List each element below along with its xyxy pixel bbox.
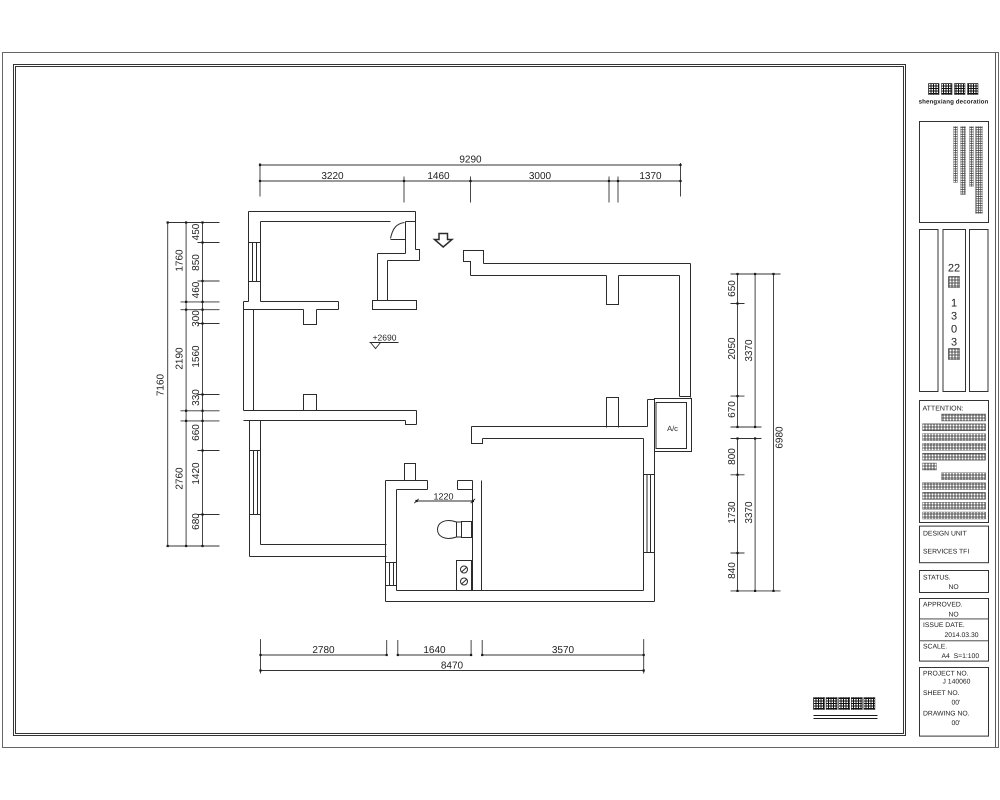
svg-text:1460: 1460 — [427, 171, 450, 182]
svg-text:shengxiang decoration: shengxiang decoration — [919, 99, 989, 106]
svg-text:2014.03.30: 2014.03.30 — [945, 632, 979, 639]
svg-text:2780: 2780 — [312, 645, 335, 656]
svg-text:J 140060: J 140060 — [943, 679, 971, 686]
svg-text:3220: 3220 — [321, 171, 344, 182]
svg-text:SCALE.: SCALE. — [923, 644, 947, 651]
svg-text:3370: 3370 — [744, 501, 755, 524]
svg-text:9290: 9290 — [459, 155, 482, 166]
svg-text:1370: 1370 — [639, 171, 662, 182]
svg-text:660: 660 — [191, 424, 202, 441]
svg-text:NO: NO — [949, 584, 959, 591]
svg-text:DESIGN UNIT: DESIGN UNIT — [923, 531, 967, 538]
svg-text:PROJECT NO.: PROJECT NO. — [923, 671, 969, 678]
svg-text:850: 850 — [191, 254, 202, 271]
svg-text:3370: 3370 — [744, 339, 755, 362]
svg-text:STATUS.: STATUS. — [923, 575, 951, 582]
svg-text:SERVICES TFI: SERVICES TFI — [923, 549, 969, 556]
svg-text:2190: 2190 — [175, 347, 186, 370]
svg-text:3: 3 — [951, 337, 957, 349]
svg-text:DRAWING NO.: DRAWING NO. — [923, 711, 970, 718]
svg-text:6980: 6980 — [775, 426, 786, 449]
svg-text:8470: 8470 — [441, 661, 464, 672]
svg-text:7160: 7160 — [156, 373, 167, 396]
svg-text:670: 670 — [727, 401, 738, 418]
svg-text:0: 0 — [951, 324, 957, 336]
svg-text:3570: 3570 — [552, 645, 575, 656]
svg-text:3000: 3000 — [529, 171, 552, 182]
svg-text:1730: 1730 — [727, 501, 738, 524]
svg-text:1560: 1560 — [191, 345, 202, 368]
svg-text:SHEET NO.: SHEET NO. — [923, 690, 960, 697]
svg-text:00': 00' — [952, 720, 961, 727]
svg-text:650: 650 — [727, 280, 738, 297]
svg-text:1420: 1420 — [191, 462, 202, 485]
svg-text:NO: NO — [949, 612, 959, 619]
svg-text:+2690: +2690 — [373, 333, 397, 343]
svg-text:300: 300 — [191, 310, 202, 327]
svg-text:00': 00' — [952, 700, 961, 707]
svg-text:APPROVED.: APPROVED. — [923, 602, 963, 609]
svg-text:2050: 2050 — [727, 337, 738, 360]
svg-text:1760: 1760 — [175, 249, 186, 272]
svg-text:840: 840 — [727, 562, 738, 579]
svg-text:1220: 1220 — [433, 492, 453, 502]
svg-text:680: 680 — [191, 513, 202, 530]
svg-text:2760: 2760 — [175, 467, 186, 490]
svg-text:ISSUE DATE.: ISSUE DATE. — [923, 622, 965, 629]
svg-text:3: 3 — [951, 311, 957, 323]
svg-text:1640: 1640 — [423, 645, 446, 656]
svg-text:450: 450 — [191, 223, 202, 240]
svg-text:22: 22 — [948, 263, 960, 275]
svg-text:1: 1 — [951, 298, 957, 310]
svg-text:ATTENTION:: ATTENTION: — [923, 406, 964, 413]
svg-text:A4 S=1:100: A4 S=1:100 — [942, 653, 980, 660]
svg-text:800: 800 — [727, 448, 738, 465]
svg-text:460: 460 — [191, 281, 202, 298]
svg-text:330: 330 — [191, 389, 202, 406]
svg-text:A/c: A/c — [667, 424, 678, 433]
